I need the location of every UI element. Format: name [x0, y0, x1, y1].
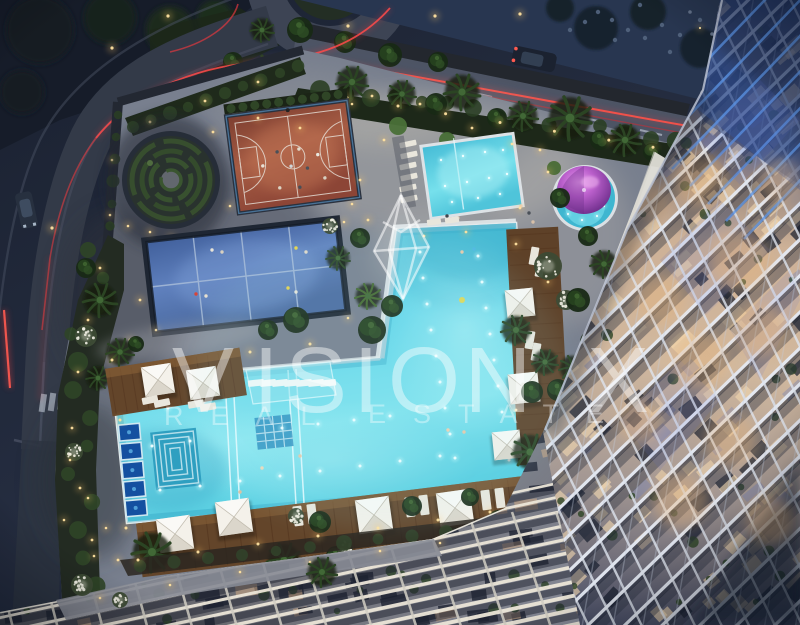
- svg-text:REAL: REAL: [164, 401, 343, 431]
- svg-text:ESTATE: ESTATE: [368, 399, 631, 429]
